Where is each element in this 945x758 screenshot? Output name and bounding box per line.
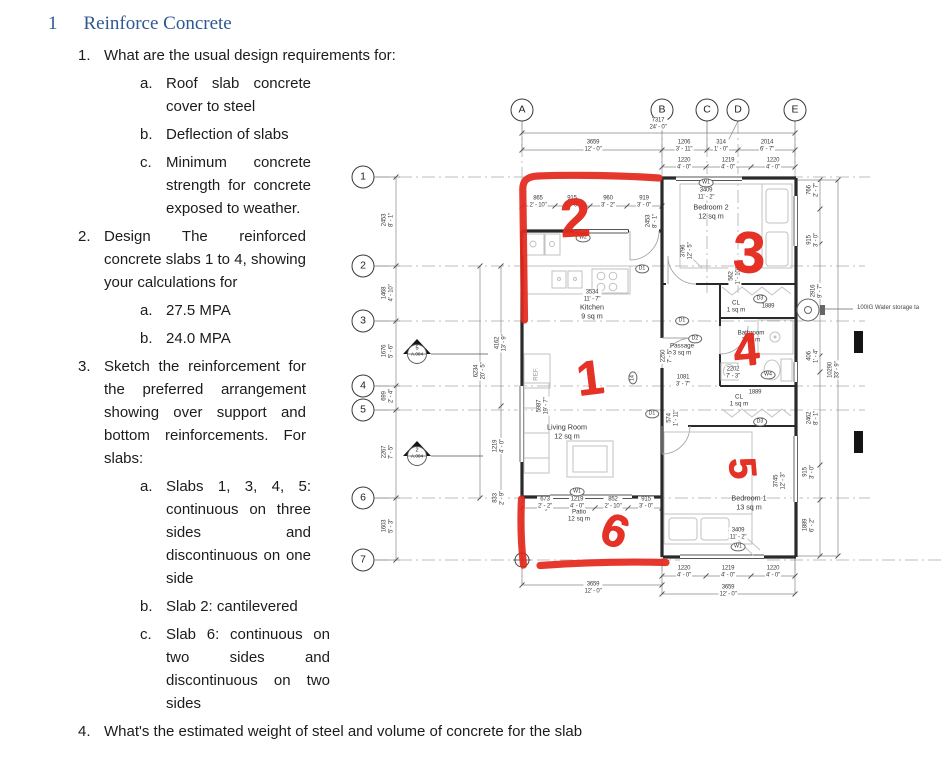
room-label: CL 1 sq m bbox=[727, 300, 746, 315]
dimension-label: 2453 8' - 1" bbox=[645, 213, 658, 229]
dimension-label: 1220 4' - 0" bbox=[676, 565, 692, 578]
dimension-label: 1081 3' - 7" bbox=[675, 374, 691, 387]
dimension-label: 406 1' - 4" bbox=[806, 348, 819, 364]
door-window-tag: D2 bbox=[688, 334, 702, 343]
list-number: b. bbox=[140, 327, 166, 350]
door-window-tag: D3 bbox=[753, 417, 767, 426]
dimension-label: 2267 7' - 5" bbox=[381, 444, 394, 460]
list-number: b. bbox=[140, 595, 166, 618]
doc-block-row: b. Slab 2: cantilevered bbox=[140, 595, 311, 618]
dimension-label: 3745 12' - 3" bbox=[773, 471, 786, 490]
doc-block-row: a. Slabs 1, 3, 4, 5: continuous on three… bbox=[140, 475, 311, 590]
list-text: Design The reinforced concrete slabs 1 t… bbox=[104, 225, 306, 294]
grid-bubble: 7 bbox=[352, 549, 375, 572]
section-title: Reinforce Concrete bbox=[84, 13, 232, 34]
door-window-tag: D1 bbox=[675, 316, 689, 325]
door-window-tag: W4 bbox=[761, 370, 776, 379]
dimension-label: 6234 20' - 5" bbox=[473, 361, 486, 380]
room-label: CL 1 sq m bbox=[730, 394, 749, 409]
grid-bubble: E bbox=[784, 99, 807, 122]
dimension-label: 3409 11' - 2" bbox=[729, 527, 748, 540]
list-text: Minimum concrete strength for concrete e… bbox=[166, 151, 311, 220]
doc-block-row: 3. Sketch the reinforcement for the pref… bbox=[78, 355, 306, 470]
dimension-label: 3409 11' - 2" bbox=[697, 187, 716, 200]
list-number: c. bbox=[140, 151, 166, 220]
grid-bubble: 6 bbox=[352, 487, 375, 510]
list-number: a. bbox=[140, 72, 166, 118]
tank-callout: 100IG Water storage ta bbox=[857, 305, 919, 311]
grid-bubble: 1 bbox=[352, 166, 375, 189]
red-slab-number: 3 bbox=[732, 223, 766, 282]
grid-bubble: 5 bbox=[352, 399, 375, 422]
list-number: a. bbox=[140, 299, 166, 322]
room-label: Bedroom 1 13 sq m bbox=[731, 494, 766, 511]
grid-bubble: 4 bbox=[352, 375, 375, 398]
dimension-label: 1889 bbox=[761, 304, 776, 311]
dimension-label: 1219 4' - 0" bbox=[720, 157, 736, 170]
list-number: a. bbox=[140, 475, 166, 590]
document-page: 1Reinforce Concrete 1. What are the usua… bbox=[0, 0, 945, 743]
section-label: 2 A.004 bbox=[411, 447, 423, 458]
dimension-label: 3659 12' - 0" bbox=[718, 584, 737, 597]
grid-bubble: C bbox=[696, 99, 719, 122]
dimension-label: 699 2' - 4" bbox=[381, 388, 394, 404]
door-window-tag: D3 bbox=[753, 294, 767, 303]
dimension-label: 833 2' - 9" bbox=[492, 490, 505, 506]
dimension-label: 574 1' - 11" bbox=[666, 409, 679, 428]
door-window-tag: W1 bbox=[731, 542, 746, 551]
room-label: Kitchen 9 sq m bbox=[580, 303, 604, 320]
dimension-label: 1676 5' - 6" bbox=[381, 343, 394, 359]
list-number: 2. bbox=[78, 225, 104, 294]
question-1: 1. What are the usual design requirement… bbox=[78, 44, 938, 67]
dimension-label: 915 3' - 0" bbox=[638, 496, 654, 509]
door-window-tag: D1 bbox=[635, 264, 649, 273]
dimension-label: 4162 13' - 9" bbox=[494, 333, 507, 352]
question-text: What are the usual design requirements f… bbox=[104, 44, 938, 67]
dimension-label: 1468 4' - 10" bbox=[381, 283, 394, 302]
dimension-label: 766 2' - 7" bbox=[806, 182, 819, 198]
dimension-label: 3659 12' - 0" bbox=[583, 581, 602, 594]
dimension-label: 1220 4' - 0" bbox=[765, 157, 781, 170]
grid-bubble: A bbox=[511, 99, 534, 122]
list-number: 1. bbox=[78, 44, 104, 67]
dimension-label: 1220 4' - 0" bbox=[676, 157, 692, 170]
water-tank bbox=[797, 299, 853, 321]
red-slab-number: 4 bbox=[731, 325, 761, 373]
section-cut-mark bbox=[854, 431, 863, 453]
door-window-tag: D1 bbox=[645, 409, 659, 418]
list-text: Deflection of slabs bbox=[166, 123, 311, 146]
dimension-label: 919 3' - 0" bbox=[636, 195, 652, 208]
dimension-label: 915 3' - 0" bbox=[806, 232, 819, 248]
section-heading: 1Reinforce Concrete bbox=[48, 12, 945, 36]
doc-block-row: a. Roof slab concrete cover to steel bbox=[140, 72, 311, 118]
dimension-label: 673 2' - 2" bbox=[537, 496, 553, 509]
doc-block-row: b. 24.0 MPA bbox=[140, 327, 311, 350]
dimension-label: 314 1' - 0" bbox=[713, 139, 729, 152]
dimension-label: 2453 8' - 1" bbox=[381, 212, 394, 228]
room-label: Patio 12 sq m bbox=[568, 509, 590, 524]
dimension-label: 1603 5' - 3" bbox=[381, 518, 394, 534]
dimension-label: 3534 11' - 7" bbox=[583, 289, 602, 302]
dimension-label: 1889 6' - 2" bbox=[802, 517, 815, 533]
floor-plan-drawing bbox=[330, 88, 945, 648]
dimension-label: 1219 4' - 0" bbox=[492, 438, 505, 454]
list-text: What's the estimated weight of steel and… bbox=[104, 720, 798, 743]
list-number: b. bbox=[140, 123, 166, 146]
red-slab-number: 2 bbox=[559, 190, 592, 245]
room-label: REF. bbox=[532, 367, 539, 380]
dimension-label: 915 3' - 0" bbox=[802, 464, 815, 480]
dimension-label: 1206 3' - 11" bbox=[675, 139, 694, 152]
list-text: 27.5 MPA bbox=[166, 299, 311, 322]
red-slab-number: 5 bbox=[722, 456, 762, 480]
doc-block-row: 2. Design The reinforced concrete slabs … bbox=[78, 225, 306, 294]
list-text: Slab 6: continuous on two sides and disc… bbox=[166, 623, 330, 715]
dimension-label: 1219 4' - 0" bbox=[720, 565, 736, 578]
section-cut-mark bbox=[854, 331, 863, 353]
section-label: 5 A.004 bbox=[411, 345, 423, 356]
list-text: 24.0 MPA bbox=[166, 327, 311, 350]
dimension-label: 865 2' - 10" bbox=[528, 195, 547, 208]
room-label: Passage 3 sq m bbox=[670, 343, 694, 358]
list-number: c. bbox=[140, 623, 166, 715]
list-text: Sketch the reinforcement for the preferr… bbox=[104, 355, 306, 470]
dimension-label: 2916 9' - 7" bbox=[810, 283, 823, 299]
room-label: Bedroom 2 12 sq m bbox=[693, 203, 728, 220]
grid-bubble: D bbox=[727, 99, 750, 122]
doc-block-row: 4. What's the estimated weight of steel … bbox=[78, 720, 798, 743]
list-number: 4. bbox=[78, 720, 104, 743]
list-number: 3. bbox=[78, 355, 104, 470]
door-window-tag: W1 bbox=[699, 178, 714, 187]
red-slab-number: 1 bbox=[574, 354, 606, 405]
list-text: Roof slab concrete cover to steel bbox=[166, 72, 311, 118]
doc-block-row: b. Deflection of slabs bbox=[140, 123, 311, 146]
dimension-label: 3796 12' - 5" bbox=[680, 241, 693, 260]
dimension-label: 1889 bbox=[748, 390, 763, 397]
list-text: Slab 2: cantilevered bbox=[166, 595, 311, 618]
room-label: Living Room 12 sq m bbox=[547, 423, 587, 440]
dimension-label: 960 3' - 2" bbox=[600, 195, 616, 208]
dimension-label: 2462 8' - 1" bbox=[806, 410, 819, 426]
doc-block-row: a. 27.5 MPA bbox=[140, 299, 311, 322]
dimension-label: 10290 33' - 9" bbox=[827, 360, 840, 379]
dimension-label: 2014 6' - 7" bbox=[759, 139, 775, 152]
dimension-label: 7317 24' - 0" bbox=[648, 117, 667, 130]
section-number: 1 bbox=[48, 13, 58, 34]
doc-block-row: c. Slab 6: continuous on two sides and d… bbox=[140, 623, 330, 715]
dimension-label: 1220 4' - 0" bbox=[765, 565, 781, 578]
dimension-label: 5987 19' - 7" bbox=[536, 396, 549, 415]
floor-plan-image: ABCDE 1234567 7317 24' - 0"3659 12' - 0"… bbox=[330, 88, 945, 648]
grid-bubble: 3 bbox=[352, 310, 375, 333]
doc-block-row: c. Minimum concrete strength for concret… bbox=[140, 151, 311, 220]
grid-bubble: 2 bbox=[352, 255, 375, 278]
list-text: Slabs 1, 3, 4, 5: continuous on three si… bbox=[166, 475, 311, 590]
dimension-label: 3659 12' - 0" bbox=[583, 139, 602, 152]
door-window-tag: W1 bbox=[570, 487, 585, 496]
